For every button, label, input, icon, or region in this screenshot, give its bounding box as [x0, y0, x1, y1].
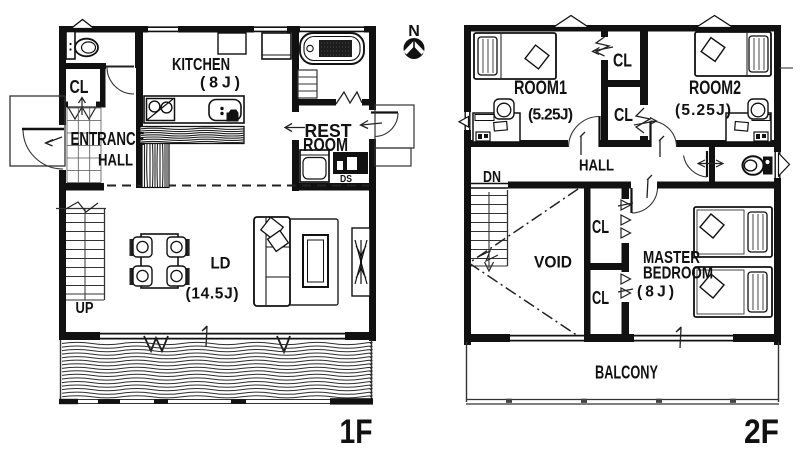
svg-text:(5.25J): (5.25J): [528, 107, 573, 124]
svg-text:HALL: HALL: [579, 158, 614, 175]
svg-text:N: N: [408, 23, 420, 40]
svg-text:2F: 2F: [744, 413, 779, 451]
svg-text:DN: DN: [483, 169, 501, 186]
svg-text:CL: CL: [70, 77, 89, 97]
svg-text:ROOM1: ROOM1: [514, 78, 567, 99]
svg-text:ROOM2: ROOM2: [689, 78, 741, 99]
svg-text:VOID: VOID: [534, 253, 572, 272]
svg-text:DS: DS: [340, 173, 352, 185]
svg-text:BEDROOM: BEDROOM: [643, 263, 713, 283]
svg-text:KITCHEN: KITCHEN: [172, 54, 230, 74]
svg-text:ROOM: ROOM: [303, 134, 348, 155]
svg-text:CL: CL: [613, 50, 632, 71]
svg-text:ENTRANCE: ENTRANCE: [71, 129, 145, 149]
svg-text:(5.25J): (5.25J): [675, 102, 731, 119]
svg-text:CL: CL: [592, 217, 609, 237]
svg-text:UP: UP: [76, 300, 94, 317]
svg-text:1F: 1F: [340, 413, 373, 451]
svg-text:CL: CL: [592, 288, 609, 308]
svg-text:LD: LD: [211, 255, 231, 273]
svg-text:BALCONY: BALCONY: [595, 363, 658, 383]
svg-text:CL: CL: [614, 104, 633, 125]
svg-text:(14.5J): (14.5J): [186, 286, 239, 303]
svg-text:HALL: HALL: [98, 152, 133, 170]
